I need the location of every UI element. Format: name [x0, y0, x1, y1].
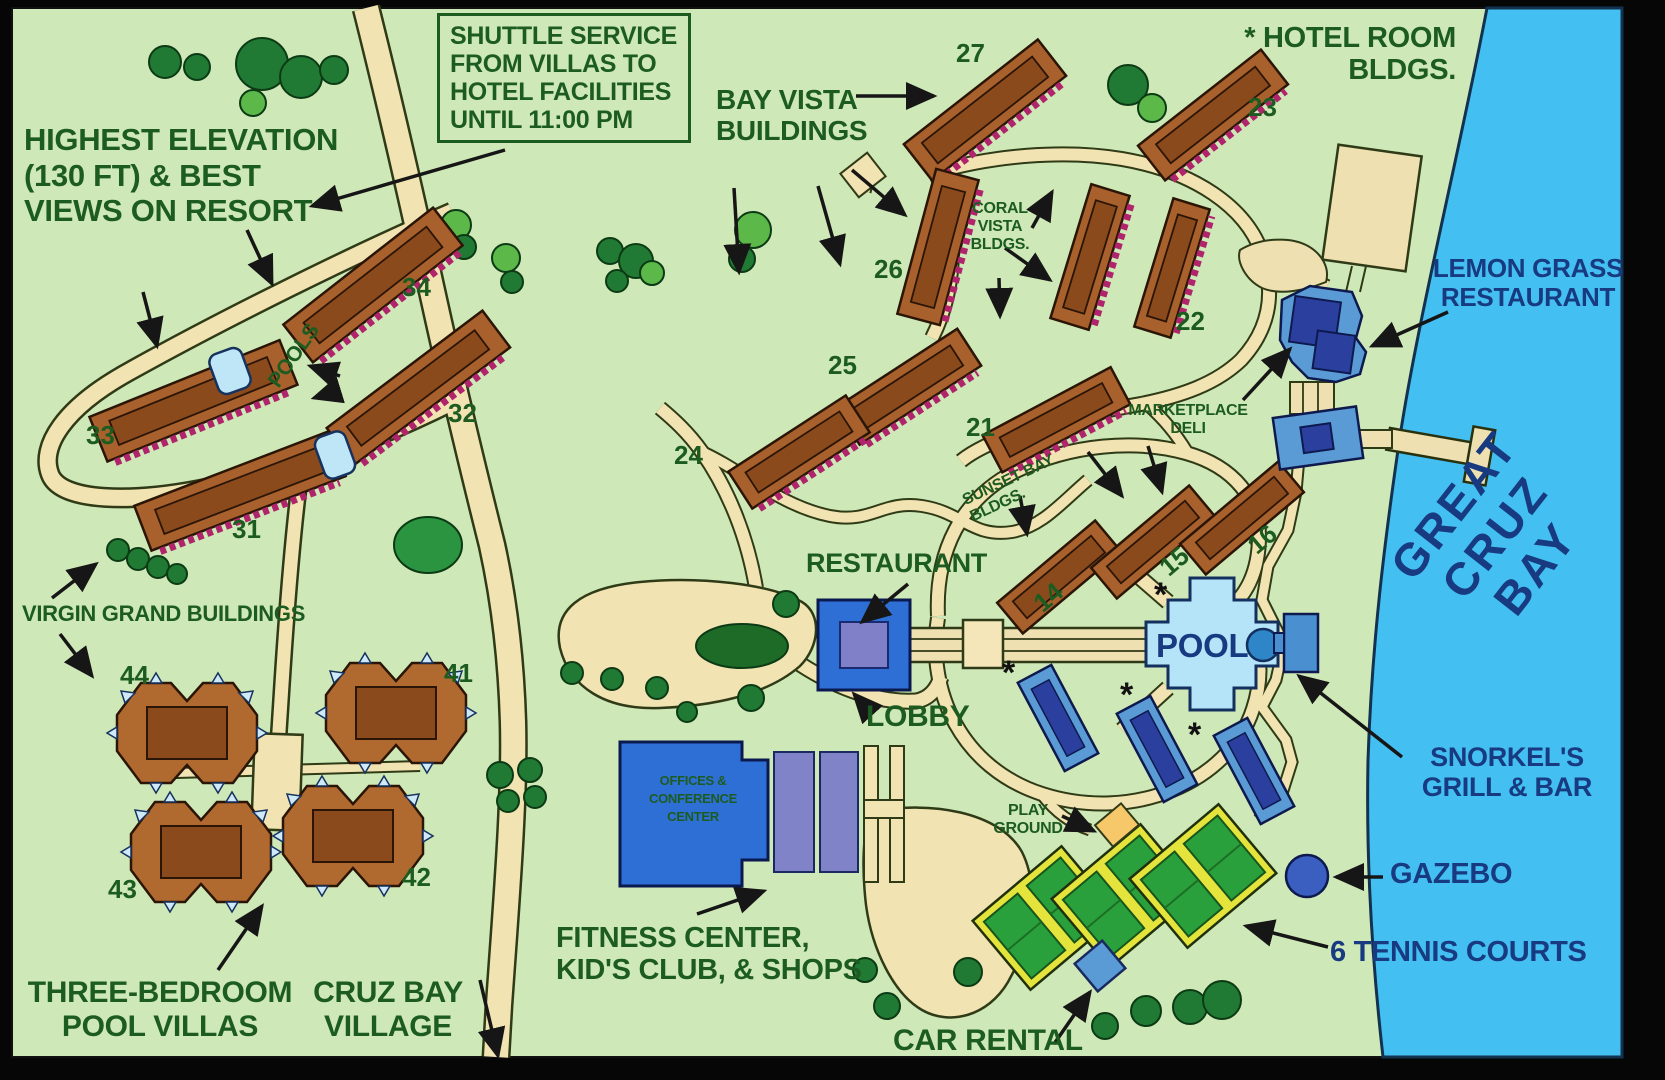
building-number-25: 25 [828, 350, 857, 381]
virgin-grand-label: VIRGIN GRAND BUILDINGS [22, 602, 305, 627]
playground-label: PLAY GROUND [988, 802, 1068, 838]
building-number-22: 22 [1176, 306, 1205, 337]
shuttle-service-note: SHUTTLE SERVICE FROM VILLAS TO HOTEL FAC… [437, 13, 691, 143]
hotel-room-bldgs-label: * HOTEL ROOM BLDGS. [1238, 22, 1456, 87]
marketplace-deli-label: MARKETPLACE DELI [1128, 402, 1248, 438]
building-number-33: 33 [86, 420, 115, 451]
gazebo-label: GAZEBO [1390, 858, 1512, 890]
asterisk-icon: * [1188, 716, 1202, 754]
shops-building-a [774, 752, 814, 872]
highest-elevation-label: HIGHEST ELEVATION (130 FT) & BEST VIEWS … [24, 122, 338, 229]
lemon-grass-label: LEMON GRASS RESTAURANT [1432, 254, 1624, 312]
upper-parking [1322, 145, 1421, 272]
asterisk-icon: * [1002, 654, 1016, 692]
building-number-24: 24 [674, 440, 703, 471]
building-number-23: 23 [1248, 92, 1277, 123]
lobby-label: LOBBY [866, 700, 970, 734]
building-number-27: 27 [956, 38, 985, 69]
shops-building-b [820, 752, 858, 872]
cruz-bay-village-label: CRUZ BAY VILLAGE [308, 976, 468, 1043]
building-number-42: 42 [402, 862, 431, 893]
gazebo-shape [1286, 855, 1328, 897]
restaurant-inner [840, 622, 888, 668]
building-number-41: 41 [444, 658, 473, 689]
building-number-32: 32 [448, 398, 477, 429]
building-number-34: 34 [402, 272, 431, 303]
bay-vista-label: BAY VISTA BUILDINGS [716, 84, 867, 147]
building-number-26: 26 [874, 254, 903, 285]
pool-label: POOL [1156, 628, 1248, 665]
building-number-43: 43 [108, 874, 137, 905]
snorkels-label: SNORKEL'S GRILL & BAR [1402, 742, 1612, 802]
restaurant-label: RESTAURANT [806, 548, 987, 578]
fitness-label: FITNESS CENTER, KID'S CLUB, & SHOPS [556, 922, 862, 987]
resort-map-screenshot: * * * * SHUTTLE SERVICE [0, 0, 1665, 1080]
building-number-31: 31 [232, 514, 261, 545]
coral-vista-label: CORAL VISTA BLDGS. [968, 200, 1032, 254]
three-bedroom-label: THREE-BEDROOM POOL VILLAS [24, 976, 296, 1043]
asterisk-icon: * [1120, 676, 1134, 714]
car-rental-label: CAR RENTAL [893, 1024, 1083, 1058]
offices-label: OFFICES & CONFERENCE CENTER [622, 772, 764, 827]
building-number-21: 21 [966, 412, 995, 443]
asterisk-icon: * [1154, 576, 1168, 614]
walkway-node [963, 620, 1003, 668]
tennis-label: 6 TENNIS COURTS [1330, 936, 1587, 968]
building-number-44: 44 [120, 660, 149, 691]
deli-building [1273, 406, 1363, 469]
